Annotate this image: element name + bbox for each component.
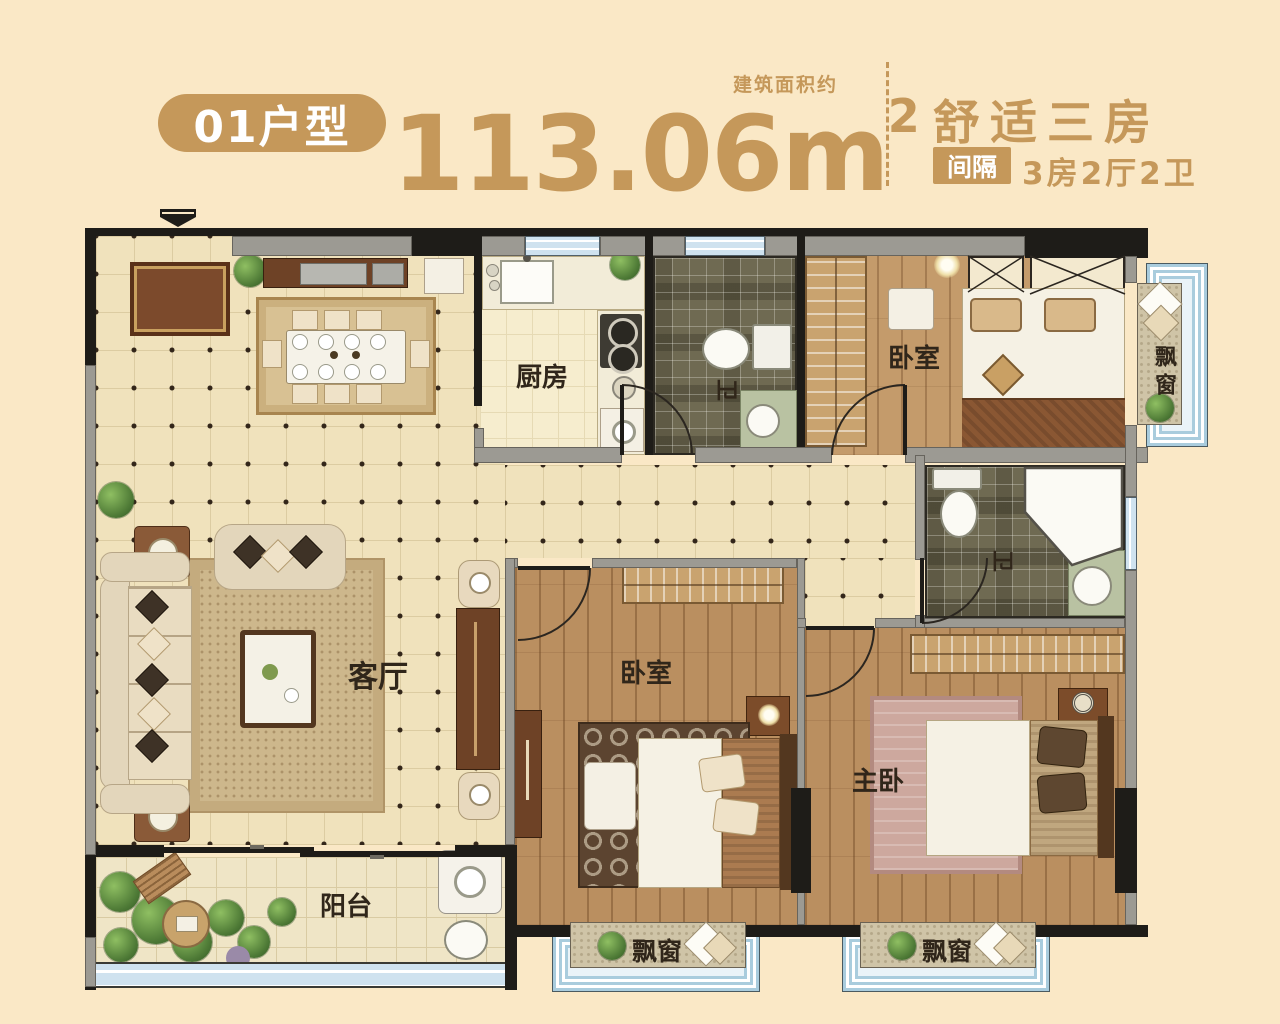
room-label-bay-bottom-left: 飘窗	[628, 932, 686, 968]
door-arc	[806, 628, 874, 696]
room-label-bedroom-top: 卧室	[878, 338, 950, 375]
sliding-door	[164, 845, 455, 859]
door-arc	[832, 385, 905, 455]
room-label-bath-top: 卫	[712, 376, 744, 404]
room-label-master: 主卧	[842, 761, 914, 798]
room-label-bay-right: 飘窗	[1147, 328, 1179, 418]
shower-stall	[1025, 468, 1122, 565]
door-arc	[518, 568, 590, 640]
plan-overlay	[0, 0, 1280, 1024]
room-label-balcony: 阳台	[310, 886, 382, 923]
entry-marker-icon	[160, 209, 196, 227]
floor-plan-page: 01户型 113.06m2 建筑面积约 舒适三房 间隔 3房2厅2卫	[0, 0, 1280, 1024]
room-label-kitchen: 厨房	[494, 357, 590, 394]
room-label-living: 客厅	[338, 652, 418, 696]
room-label-bay-bottom-right: 飘窗	[918, 932, 976, 968]
room-label-bath-master: 卫	[988, 547, 1020, 575]
room-label-bedroom-mid: 卧室	[610, 653, 682, 690]
door-arc	[922, 558, 987, 623]
door-arc	[622, 385, 692, 455]
